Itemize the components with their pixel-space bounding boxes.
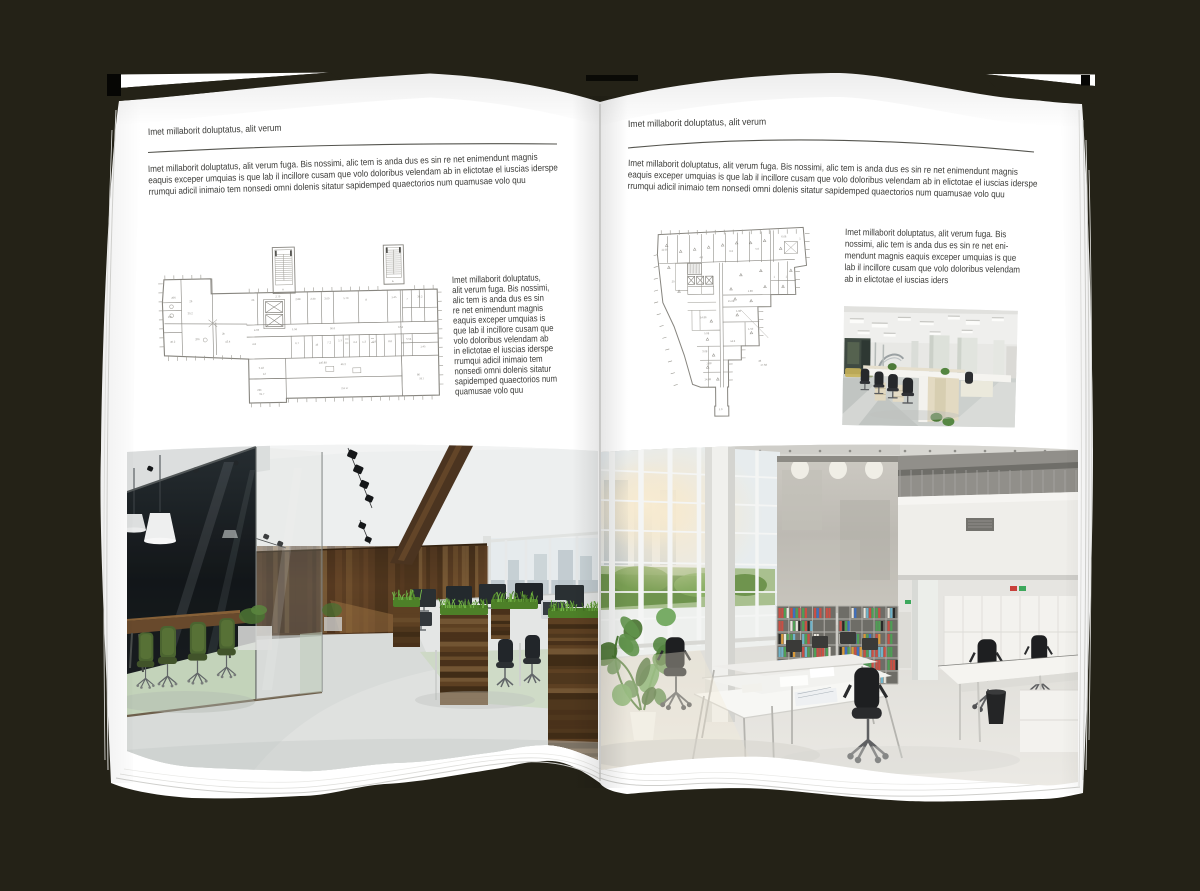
svg-text:2.88: 2.88 [295, 297, 301, 301]
svg-text:11.08: 11.08 [661, 248, 668, 252]
svg-text:1.88: 1.88 [706, 361, 712, 365]
svg-text:2.79: 2.79 [275, 294, 281, 298]
svg-text:2-й эт: 2-й эт [341, 386, 349, 390]
svg-text:14.6: 14.6 [730, 339, 736, 343]
svg-text:3.08: 3.08 [702, 349, 708, 353]
svg-text:10b: 10b [168, 315, 173, 319]
svg-text:5.08: 5.08 [736, 309, 742, 313]
svg-text:3.09: 3.09 [324, 296, 330, 300]
svg-text:1.1: 1.1 [338, 338, 342, 342]
svg-text:1.86: 1.86 [748, 289, 754, 293]
svg-text:91.7: 91.7 [259, 392, 265, 396]
svg-text:46.3: 46.3 [341, 362, 347, 366]
svg-text:0.54: 0.54 [398, 325, 404, 329]
svg-text:5.79: 5.79 [343, 296, 349, 300]
svg-text:14.86: 14.86 [704, 377, 711, 381]
svg-text:40.2: 40.2 [170, 340, 176, 344]
svg-text:4.03: 4.03 [254, 328, 260, 332]
svg-text:22b: 22b [257, 388, 262, 392]
svg-text:4.4: 4.4 [353, 340, 357, 344]
svg-text:17.68: 17.68 [760, 363, 767, 367]
svg-text:206: 206 [171, 296, 176, 300]
svg-text:43.4: 43.4 [225, 339, 231, 343]
svg-text:15.08: 15.08 [728, 299, 735, 303]
svg-text:140.88: 140.88 [319, 360, 328, 364]
svg-text:4.8: 4.8 [252, 342, 256, 346]
svg-text:30.2: 30.2 [188, 311, 194, 315]
svg-text:8.8: 8.8 [388, 339, 392, 343]
svg-text:78.7: 78.7 [419, 376, 425, 380]
svg-text:7.2: 7.2 [327, 340, 331, 344]
svg-text:1.3: 1.3 [362, 340, 366, 344]
svg-text:6.6: 6.6 [729, 249, 733, 253]
svg-text:14.86: 14.86 [700, 315, 707, 319]
svg-text:1.0: 1.0 [719, 407, 723, 411]
svg-text:quamusae volo quu: quamusae volo quu [455, 384, 524, 397]
svg-text:6.06: 6.06 [781, 235, 787, 239]
svg-text:4.8: 4.8 [372, 339, 376, 343]
svg-text:4.6: 4.6 [699, 255, 703, 259]
svg-text:5.54: 5.54 [406, 337, 412, 341]
svg-text:nossimi, alic tem is anda dus: nossimi, alic tem is anda dus es sin re … [845, 238, 1009, 251]
svg-text:1.56: 1.56 [292, 327, 298, 331]
svg-text:90.6: 90.6 [330, 326, 336, 330]
svg-text:5.6: 5.6 [755, 247, 759, 251]
svg-text:Imet millaborit doluptatus, al: Imet millaborit doluptatus, alit verum f… [845, 226, 1006, 239]
svg-text:5.43: 5.43 [259, 366, 265, 370]
svg-text:1.45: 1.45 [391, 295, 397, 299]
svg-text:2.30: 2.30 [310, 297, 316, 301]
svg-text:206: 206 [195, 337, 200, 341]
svg-text:ab in elictotae el iuscias ide: ab in elictotae el iuscias iders [844, 273, 948, 285]
svg-text:30.2: 30.2 [417, 294, 423, 298]
svg-text:5.08: 5.08 [704, 331, 710, 335]
svg-text:6.7: 6.7 [295, 341, 299, 345]
svg-text:1.50: 1.50 [748, 327, 754, 331]
svg-text:1.45: 1.45 [420, 344, 426, 348]
